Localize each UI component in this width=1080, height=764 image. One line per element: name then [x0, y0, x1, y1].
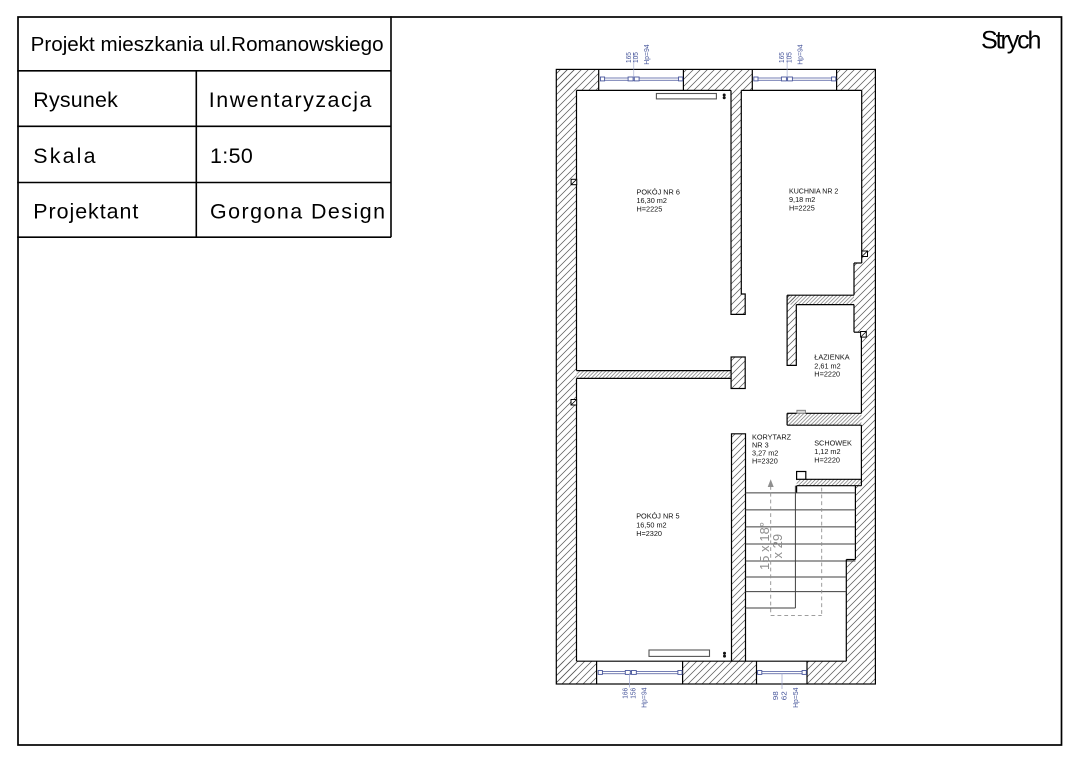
- svg-text:Rysunek: Rysunek: [33, 88, 118, 112]
- svg-text:H=2225: H=2225: [637, 205, 663, 214]
- svg-text:POKÓJ NR 5: POKÓJ NR 5: [636, 512, 679, 521]
- svg-text:H=2320: H=2320: [752, 456, 778, 465]
- svg-text:Skala: Skala: [33, 144, 95, 168]
- svg-text:x 29: x 29: [770, 534, 785, 559]
- svg-text:ŁAZIENKA: ŁAZIENKA: [814, 353, 849, 362]
- svg-text:Projektant: Projektant: [33, 200, 138, 224]
- svg-text:105: 105: [633, 52, 640, 63]
- svg-text:Strych: Strych: [981, 26, 1042, 54]
- svg-text:1:50: 1:50: [210, 144, 253, 168]
- svg-text:165: 165: [779, 52, 786, 63]
- svg-text:Gorgona Design: Gorgona Design: [210, 200, 385, 224]
- svg-text:156: 156: [631, 688, 638, 699]
- svg-text:Hp=94: Hp=94: [798, 44, 805, 64]
- svg-text:98: 98: [773, 691, 780, 700]
- svg-text:H=2320: H=2320: [636, 529, 662, 538]
- svg-text:62: 62: [782, 691, 789, 700]
- svg-text:Projekt mieszkania ul.Romanows: Projekt mieszkania ul.Romanowskiego: [31, 33, 384, 56]
- svg-text:Inwentaryzacja: Inwentaryzacja: [209, 88, 372, 112]
- svg-text:H=2225: H=2225: [789, 204, 815, 213]
- svg-text:165: 165: [626, 52, 633, 63]
- svg-text:H=2220: H=2220: [814, 456, 840, 465]
- svg-text:Hp=54: Hp=54: [793, 687, 800, 707]
- svg-text:105: 105: [787, 52, 794, 63]
- svg-text:166: 166: [622, 688, 629, 699]
- svg-text:H=2220: H=2220: [814, 370, 840, 379]
- svg-text:Hp=94: Hp=94: [644, 44, 651, 64]
- svg-text:Hp=94: Hp=94: [641, 687, 648, 707]
